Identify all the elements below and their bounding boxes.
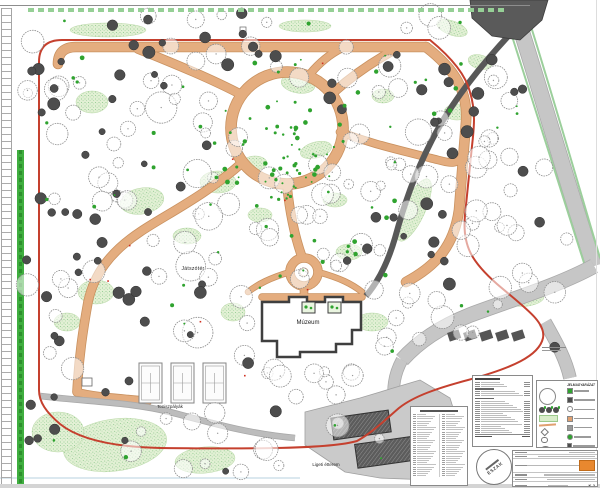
text-line-bar — [475, 424, 480, 425]
text-line-bar — [442, 469, 445, 470]
evergreen-tree-symbol — [539, 407, 545, 413]
text-line-bar — [475, 393, 480, 394]
text-line-bar — [413, 438, 416, 439]
species-quantity-panel — [472, 375, 533, 447]
text-line-bar — [481, 413, 503, 414]
text-line-bar — [446, 462, 456, 463]
text-line-bar — [442, 462, 445, 463]
text-line-bar — [515, 479, 527, 480]
text-line-bar — [446, 447, 459, 448]
drawing-number: K-2 — [589, 483, 595, 487]
text-line-bar — [413, 427, 416, 428]
text-line-bar — [475, 403, 480, 404]
evergreen-tree-symbol — [553, 407, 559, 413]
text-line-bar — [417, 432, 432, 433]
text-line-bar — [475, 413, 480, 414]
text-line-bar — [475, 401, 480, 402]
text-line-bar — [417, 473, 428, 474]
crown-diameter-symbol — [539, 446, 552, 449]
text-line-bar — [475, 411, 480, 412]
park-site-plan: Játszótér Múzeum Teniszpályák Ligeti étt… — [0, 0, 600, 488]
text-line-bar — [481, 426, 501, 427]
text-line-bar — [475, 415, 480, 416]
text-line-bar — [417, 462, 427, 463]
text-line-bar — [446, 469, 461, 470]
species-rows — [475, 382, 530, 437]
text-line-bar — [574, 427, 592, 428]
legend-item-symbol — [567, 397, 573, 403]
text-line-bar — [413, 469, 416, 470]
text-line-bar — [481, 391, 515, 392]
text-line-bar — [413, 414, 416, 415]
text-line-bar — [442, 451, 445, 452]
text-line-bar — [446, 427, 465, 428]
text-line-bar — [417, 458, 431, 459]
legend-symbols — [539, 388, 565, 448]
text-line-bar — [475, 430, 480, 431]
text-line-bar — [446, 473, 457, 474]
text-line-bar — [481, 395, 523, 396]
text-line-bar — [481, 415, 507, 416]
text-line-bar — [573, 445, 595, 446]
text-line-bar — [442, 414, 445, 415]
text-line-bar — [413, 473, 416, 474]
text-line-bar — [417, 453, 434, 454]
text-line-bar — [446, 434, 459, 435]
text-line-bar — [481, 432, 512, 433]
text-line-bar — [417, 460, 429, 461]
legend-panel: JELMAGYARÁZAT — [536, 380, 598, 448]
text-line-bar — [442, 438, 445, 439]
text-line-bar — [413, 440, 416, 441]
text-line-bar — [515, 452, 527, 453]
text-line-bar — [413, 434, 416, 435]
text-line-bar — [442, 421, 445, 422]
text-line-bar — [413, 475, 416, 476]
text-line-bar — [413, 442, 416, 443]
text-line-bar — [446, 451, 465, 452]
text-line-bar — [442, 467, 445, 468]
text-line-bar — [417, 438, 427, 439]
utility-note-text — [542, 347, 566, 351]
text-line-bar — [417, 421, 431, 422]
text-line-bar — [417, 418, 433, 419]
text-line-bar — [481, 417, 511, 418]
text-line-bar — [442, 418, 445, 419]
text-line-bar — [413, 458, 416, 459]
text-line-bar — [413, 464, 416, 465]
text-line-bar — [475, 391, 480, 392]
text-line-bar — [475, 421, 480, 422]
text-line-bar — [475, 426, 480, 427]
text-line-bar — [446, 416, 464, 417]
text-line-bar — [547, 479, 595, 480]
text-line-bar — [446, 423, 458, 424]
text-line-bar — [446, 456, 462, 457]
text-line-bar — [481, 411, 523, 412]
legend-item-symbol — [567, 434, 573, 440]
text-line-bar — [481, 419, 515, 420]
text-line-bar — [475, 436, 492, 437]
text-line-bar — [442, 473, 445, 474]
legend-item-symbol — [567, 406, 573, 412]
bottom-scan-band — [0, 484, 600, 488]
text-line-bar — [442, 416, 445, 417]
text-line-bar — [442, 425, 445, 426]
text-line-bar — [446, 442, 462, 443]
text-line-bar — [413, 447, 416, 448]
text-line-bar — [413, 418, 416, 419]
text-line-bar — [446, 464, 465, 465]
text-line-bar — [446, 453, 463, 454]
legend-item-symbol — [567, 425, 573, 431]
top-green-verge — [28, 8, 506, 12]
text-line-bar — [417, 434, 430, 435]
text-line-bar — [442, 471, 445, 472]
plant-list-panel — [410, 406, 468, 486]
text-line-bar — [475, 395, 480, 396]
text-line-bar — [442, 427, 445, 428]
title-block-rows: K-2 — [513, 451, 597, 487]
path-symbol — [539, 423, 556, 426]
text-line-bar — [417, 425, 427, 426]
text-line-bar — [544, 474, 595, 475]
text-line-bar — [446, 458, 460, 459]
text-line-bar — [574, 399, 595, 400]
text-line-bar — [413, 471, 416, 472]
text-line-bar — [475, 419, 480, 420]
evergreen-tree-symbol — [546, 407, 552, 413]
text-line-bar — [475, 398, 494, 400]
top-border-line — [0, 5, 530, 6]
text-line-bar — [475, 417, 480, 418]
text-line-bar — [417, 467, 434, 468]
text-line-bar — [417, 427, 436, 428]
text-line-bar — [481, 403, 509, 404]
text-line-bar — [527, 465, 580, 466]
text-line-bar — [475, 382, 480, 383]
text-line-bar — [446, 475, 455, 476]
legend-items — [567, 388, 595, 448]
text-line-bar — [446, 460, 458, 461]
text-line-bar — [475, 384, 480, 385]
text-line-bar — [538, 456, 595, 457]
text-line-bar — [481, 384, 504, 385]
text-line-bar — [475, 407, 480, 408]
text-line-bar — [481, 409, 521, 410]
legend-item-symbol — [567, 388, 573, 394]
text-line-bar — [442, 475, 445, 476]
text-line-bar — [442, 453, 445, 454]
text-line-bar — [413, 453, 416, 454]
text-line-bar — [442, 440, 445, 441]
restaurant-label: Ligeti étterem — [312, 462, 339, 467]
text-line-bar — [481, 405, 513, 406]
text-line-bar — [417, 451, 436, 452]
text-line-bar — [446, 436, 458, 437]
text-line-bar — [442, 436, 445, 437]
text-line-bar — [481, 401, 505, 402]
text-line-bar — [417, 449, 428, 450]
text-line-bar — [413, 416, 416, 417]
text-line-bar — [481, 421, 518, 422]
text-line-bar — [417, 469, 432, 470]
text-line-bar — [446, 449, 457, 450]
text-line-bar — [548, 485, 568, 486]
museum-label: Múzeum — [296, 320, 319, 326]
text-line-bar — [442, 423, 445, 424]
text-line-bar — [413, 429, 416, 430]
north-arrow-stamp: ÉSZAK — [476, 449, 512, 485]
text-line-bar — [475, 409, 480, 410]
text-line-bar — [413, 421, 416, 422]
text-line-bar — [413, 467, 416, 468]
text-line-bar — [446, 438, 456, 439]
text-line-bar — [475, 428, 480, 429]
text-line-bar — [417, 442, 433, 443]
text-line-bar — [569, 452, 595, 453]
text-line-bar — [442, 447, 445, 448]
text-line-bar — [417, 471, 430, 472]
text-line-bar — [446, 440, 464, 441]
legend-item-symbol — [567, 443, 572, 448]
text-line-bar — [446, 471, 459, 472]
shrub-area-symbol — [539, 415, 558, 422]
text-line-bar — [417, 429, 434, 430]
title-block: K-2 — [512, 450, 598, 487]
text-line-bar — [515, 474, 527, 475]
text-line-bar — [417, 456, 433, 457]
text-line-bar — [446, 418, 462, 419]
text-line-bar — [574, 390, 589, 391]
text-line-bar — [413, 456, 416, 457]
text-line-bar — [574, 409, 595, 410]
tennis-courts-label: Teniszpályák — [157, 404, 183, 409]
legend-title: JELMAGYARÁZAT — [539, 383, 595, 387]
text-line-bar — [417, 414, 426, 415]
plant-list-columns — [413, 414, 465, 477]
text-line-bar — [446, 432, 461, 433]
deciduous-tree-symbol — [539, 388, 556, 405]
company-logo — [579, 460, 595, 471]
text-line-bar — [475, 405, 480, 406]
text-line-bar — [413, 432, 416, 433]
railway-track-strip — [1, 8, 12, 484]
text-line-bar — [475, 388, 494, 390]
text-line-bar — [413, 449, 416, 450]
text-line-bar — [442, 434, 445, 435]
text-line-bar — [481, 430, 509, 431]
playground-label: Játszótér — [182, 266, 205, 272]
text-line-bar — [413, 436, 416, 437]
text-line-bar — [417, 436, 429, 437]
text-line-bar — [446, 425, 456, 426]
text-line-bar — [442, 449, 445, 450]
text-line-bar — [417, 447, 430, 448]
text-line-bar — [413, 451, 416, 452]
text-line-bar — [442, 456, 445, 457]
text-line-bar — [446, 421, 460, 422]
text-line-bar — [417, 445, 431, 446]
text-line-bar — [446, 445, 460, 446]
text-line-bar — [413, 460, 416, 461]
text-line-bar — [481, 386, 507, 387]
text-line-bar — [574, 436, 591, 437]
plant-list-title-bar — [420, 410, 457, 412]
text-line-bar — [417, 416, 435, 417]
text-line-bar — [515, 485, 527, 486]
text-line-bar — [475, 386, 480, 387]
text-line-bar — [442, 464, 445, 465]
text-line-bar — [413, 445, 416, 446]
text-line-bar — [481, 407, 517, 408]
text-line-bar — [446, 414, 455, 415]
text-line-bar — [515, 456, 527, 457]
text-line-bar — [442, 432, 445, 433]
text-line-bar — [446, 467, 463, 468]
text-line-bar — [481, 382, 500, 383]
marker-symbol — [541, 427, 549, 435]
text-line-bar — [413, 462, 416, 463]
text-line-bar — [413, 423, 416, 424]
text-line-bar — [442, 442, 445, 443]
text-line-bar — [442, 445, 445, 446]
text-line-bar — [417, 423, 429, 424]
text-line-bar — [417, 464, 436, 465]
text-line-bar — [442, 460, 445, 461]
text-line-bar — [417, 475, 426, 476]
text-line-bar — [446, 429, 463, 430]
text-line-bar — [417, 440, 435, 441]
text-line-bar — [574, 418, 594, 419]
text-line-bar — [515, 465, 527, 466]
legend-item-symbol — [567, 416, 573, 422]
text-line-bar — [481, 424, 522, 425]
text-line-bar — [475, 432, 480, 433]
species-panel-title-bar — [475, 378, 500, 380]
text-line-bar — [481, 393, 519, 394]
text-line-bar — [442, 458, 445, 459]
text-line-bar — [481, 428, 505, 429]
text-line-bar — [413, 425, 416, 426]
text-line-bar — [442, 429, 445, 430]
small-tree-symbol — [541, 437, 548, 444]
